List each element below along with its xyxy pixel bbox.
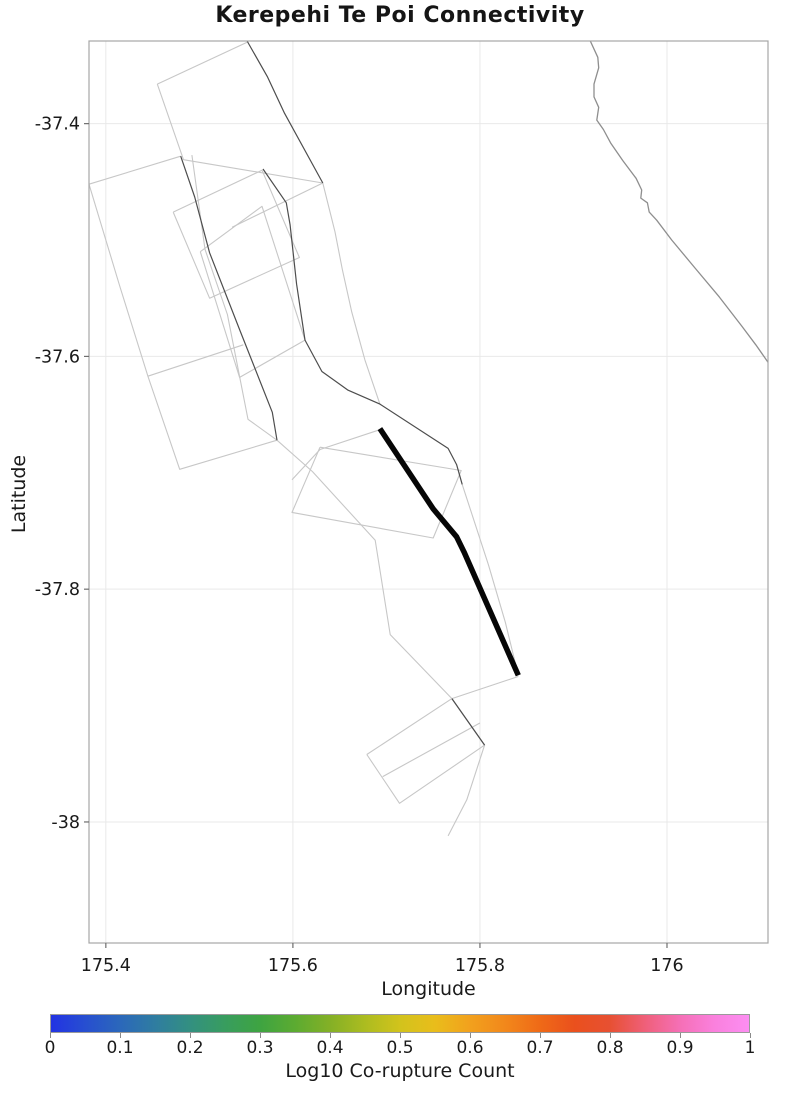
figure: Kerepehi Te Poi Connectivity 175.4175.61… <box>0 0 800 1096</box>
fault-trace-light <box>292 447 461 538</box>
plot-border <box>89 41 768 943</box>
fault-trace-dark <box>247 41 323 183</box>
y-axis-label: Latitude <box>8 394 30 594</box>
fault-map-svg: 175.4175.6175.8176-37.4-37.6-37.8-38 <box>0 0 800 1096</box>
fault-trace-light <box>323 183 380 404</box>
fault-trace-light <box>89 156 181 184</box>
x-tick-label: 176 <box>650 956 683 976</box>
coastline <box>590 41 768 362</box>
fault-trace-light <box>157 84 322 183</box>
fault-trace-light <box>157 42 247 84</box>
fault-trace-light <box>367 699 485 804</box>
y-tick-label: -37.6 <box>35 347 80 367</box>
fault-trace-light <box>462 484 518 675</box>
fault-trace-light <box>192 155 277 440</box>
colorbar-gradient <box>50 1014 750 1033</box>
y-tick-label: -37.8 <box>35 580 80 600</box>
fault-trace-light <box>89 184 277 469</box>
fault-trace-light <box>277 440 452 698</box>
y-tick-label: -37.4 <box>35 115 80 135</box>
fault-trace-light <box>148 345 243 376</box>
fault-trace-light <box>452 677 518 699</box>
x-tick-label: 175.8 <box>455 956 505 976</box>
y-tick-label: -38 <box>51 813 80 833</box>
x-axis-label: Longitude <box>89 978 768 1000</box>
fault-trace-light <box>200 206 305 377</box>
fault-trace-dark <box>181 156 277 440</box>
x-tick-label: 175.6 <box>268 956 318 976</box>
highlighted-fault <box>380 429 518 676</box>
fault-trace-light <box>383 723 480 777</box>
x-tick-label: 175.4 <box>81 956 131 976</box>
colorbar-label: Log10 Co-rupture Count <box>0 1060 800 1082</box>
